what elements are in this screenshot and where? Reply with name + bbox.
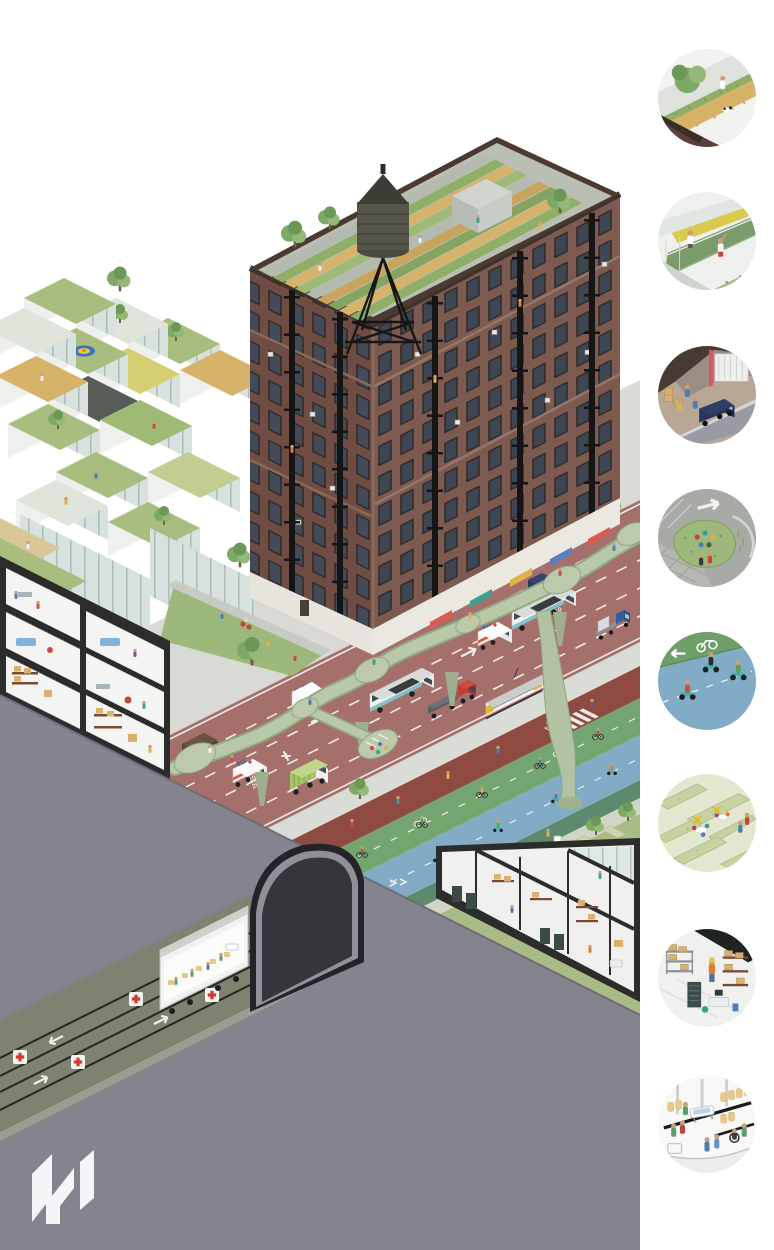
parklet-lawn (674, 520, 736, 567)
warehouse-worker (709, 957, 715, 982)
parklet-illustration (658, 489, 756, 587)
poster-canvas: 911 (0, 0, 774, 1250)
callout-rooftop-sports-court (658, 192, 756, 290)
trampoline (73, 346, 95, 357)
callout-underground-loading-dock (658, 346, 756, 444)
callout-medical-train-interior (658, 1075, 756, 1173)
medical-train-interior-illustration (658, 1075, 756, 1173)
callout-basement-workspace (658, 929, 756, 1027)
basement-workspace-illustration (658, 929, 756, 1027)
callout-scooter-lane (658, 632, 756, 730)
sports-court-illustration (658, 192, 756, 290)
rooftop-farming-illustration (658, 49, 756, 147)
terrace-modules (0, 278, 272, 562)
callout-street-parklet (658, 489, 756, 587)
player-1 (687, 230, 693, 247)
courtyard-dining-illustration (658, 774, 756, 872)
callout-rooftop-farming (658, 49, 756, 147)
loading-dock-illustration (658, 346, 756, 444)
isometric-scene: 911 (0, 0, 640, 1250)
gardener-figure (720, 76, 725, 89)
scooter-lane-illustration (658, 632, 756, 730)
callout-courtyard-dining (658, 774, 756, 872)
